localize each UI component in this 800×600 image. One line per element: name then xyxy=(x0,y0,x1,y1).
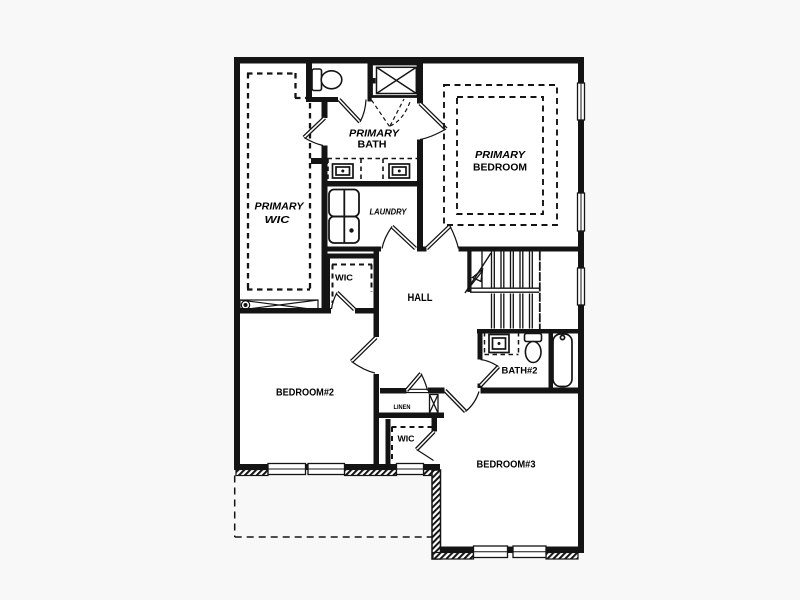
svg-text:BATH: BATH xyxy=(358,140,387,151)
svg-text:WIC: WIC xyxy=(265,214,290,226)
svg-text:PRIMARY: PRIMARY xyxy=(349,128,400,140)
svg-text:LINEN: LINEN xyxy=(394,404,411,411)
svg-text:BATH#2: BATH#2 xyxy=(502,366,538,377)
svg-text:BEDROOM#2: BEDROOM#2 xyxy=(276,387,334,399)
svg-text:LAUNDRY: LAUNDRY xyxy=(370,207,408,217)
svg-text:HALL: HALL xyxy=(408,292,433,304)
svg-text:WIC: WIC xyxy=(335,273,353,283)
svg-text:PRIMARY: PRIMARY xyxy=(475,149,526,161)
svg-text:PRIMARY: PRIMARY xyxy=(255,201,305,213)
svg-text:BEDROOM: BEDROOM xyxy=(473,163,527,174)
svg-text:WIC: WIC xyxy=(398,434,415,444)
svg-text:BEDROOM#3: BEDROOM#3 xyxy=(477,459,536,471)
